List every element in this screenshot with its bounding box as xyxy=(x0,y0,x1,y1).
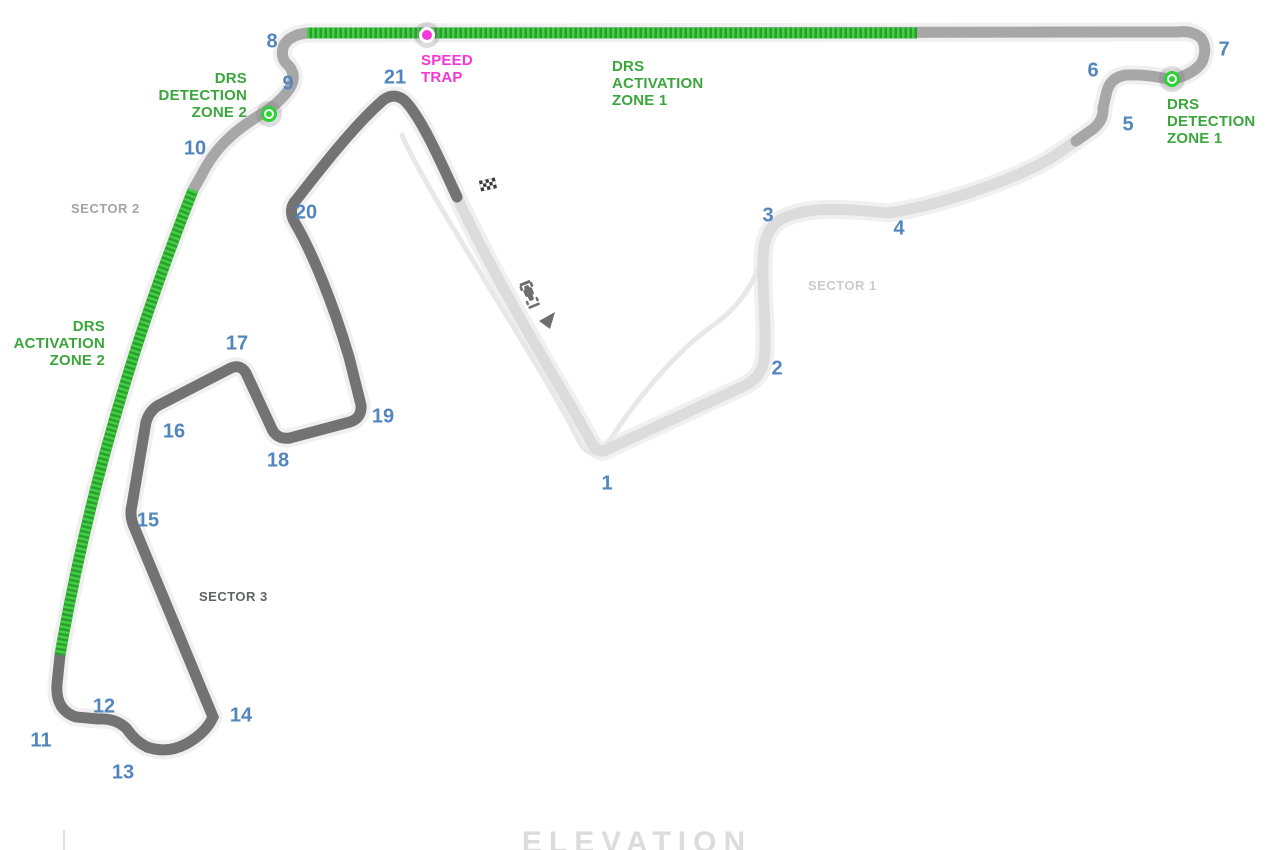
sector-1-label: SECTOR 1 xyxy=(808,278,877,293)
turn-label-16: 16 xyxy=(163,421,185,444)
sector-3-label: SECTOR 3 xyxy=(199,589,268,604)
turn-label-12: 12 xyxy=(93,696,115,719)
turn-label-5: 5 xyxy=(1122,114,1133,137)
turn-label-19: 19 xyxy=(372,406,394,429)
turn-label-14: 14 xyxy=(230,705,252,728)
turn-label-20: 20 xyxy=(295,202,317,225)
circuit-map: SPEED TRAP DRS ACTIVATION ZONE 1 DRS DET… xyxy=(0,0,1274,850)
turn-label-10: 10 xyxy=(184,138,206,161)
turn-label-1: 1 xyxy=(601,473,612,496)
track-map-svg xyxy=(0,0,1274,850)
turn-label-11: 11 xyxy=(30,730,51,753)
turn-label-6: 6 xyxy=(1087,60,1098,83)
checkered-flag-icon xyxy=(479,178,497,192)
sector-2-label: SECTOR 2 xyxy=(71,201,140,216)
sector-1-track xyxy=(457,141,1076,451)
turn-label-15: 15 xyxy=(137,510,159,533)
turn-label-8: 8 xyxy=(266,31,277,54)
turn-label-18: 18 xyxy=(267,450,289,473)
turn-label-7: 7 xyxy=(1218,39,1229,62)
drs-activation-zone-1-label: DRS ACTIVATION ZONE 1 xyxy=(612,58,703,109)
drs-detection-marker-2 xyxy=(256,101,282,127)
race-direction-arrow-icon xyxy=(539,312,555,329)
drs-activation-zone-2-label: DRS ACTIVATION ZONE 2 xyxy=(14,318,105,369)
turn-label-2: 2 xyxy=(771,358,782,381)
elevation-heading: ELEVATION xyxy=(522,826,752,850)
elevation-axis-tick xyxy=(63,830,65,850)
turn-label-17: 17 xyxy=(226,333,248,356)
drs-detection-marker-1 xyxy=(1159,66,1185,92)
turn-label-9: 9 xyxy=(282,73,293,96)
drs-detection-zone-2-label: DRS DETECTION ZONE 2 xyxy=(159,70,247,121)
drs-detection-zone-1-label: DRS DETECTION ZONE 1 xyxy=(1167,96,1255,147)
turn-label-4: 4 xyxy=(893,218,904,241)
speed-trap-marker xyxy=(414,22,440,48)
turn-label-13: 13 xyxy=(112,762,134,785)
turn-label-21: 21 xyxy=(384,67,406,90)
turn-label-3: 3 xyxy=(762,205,773,228)
speed-trap-label: SPEED TRAP xyxy=(421,52,473,86)
